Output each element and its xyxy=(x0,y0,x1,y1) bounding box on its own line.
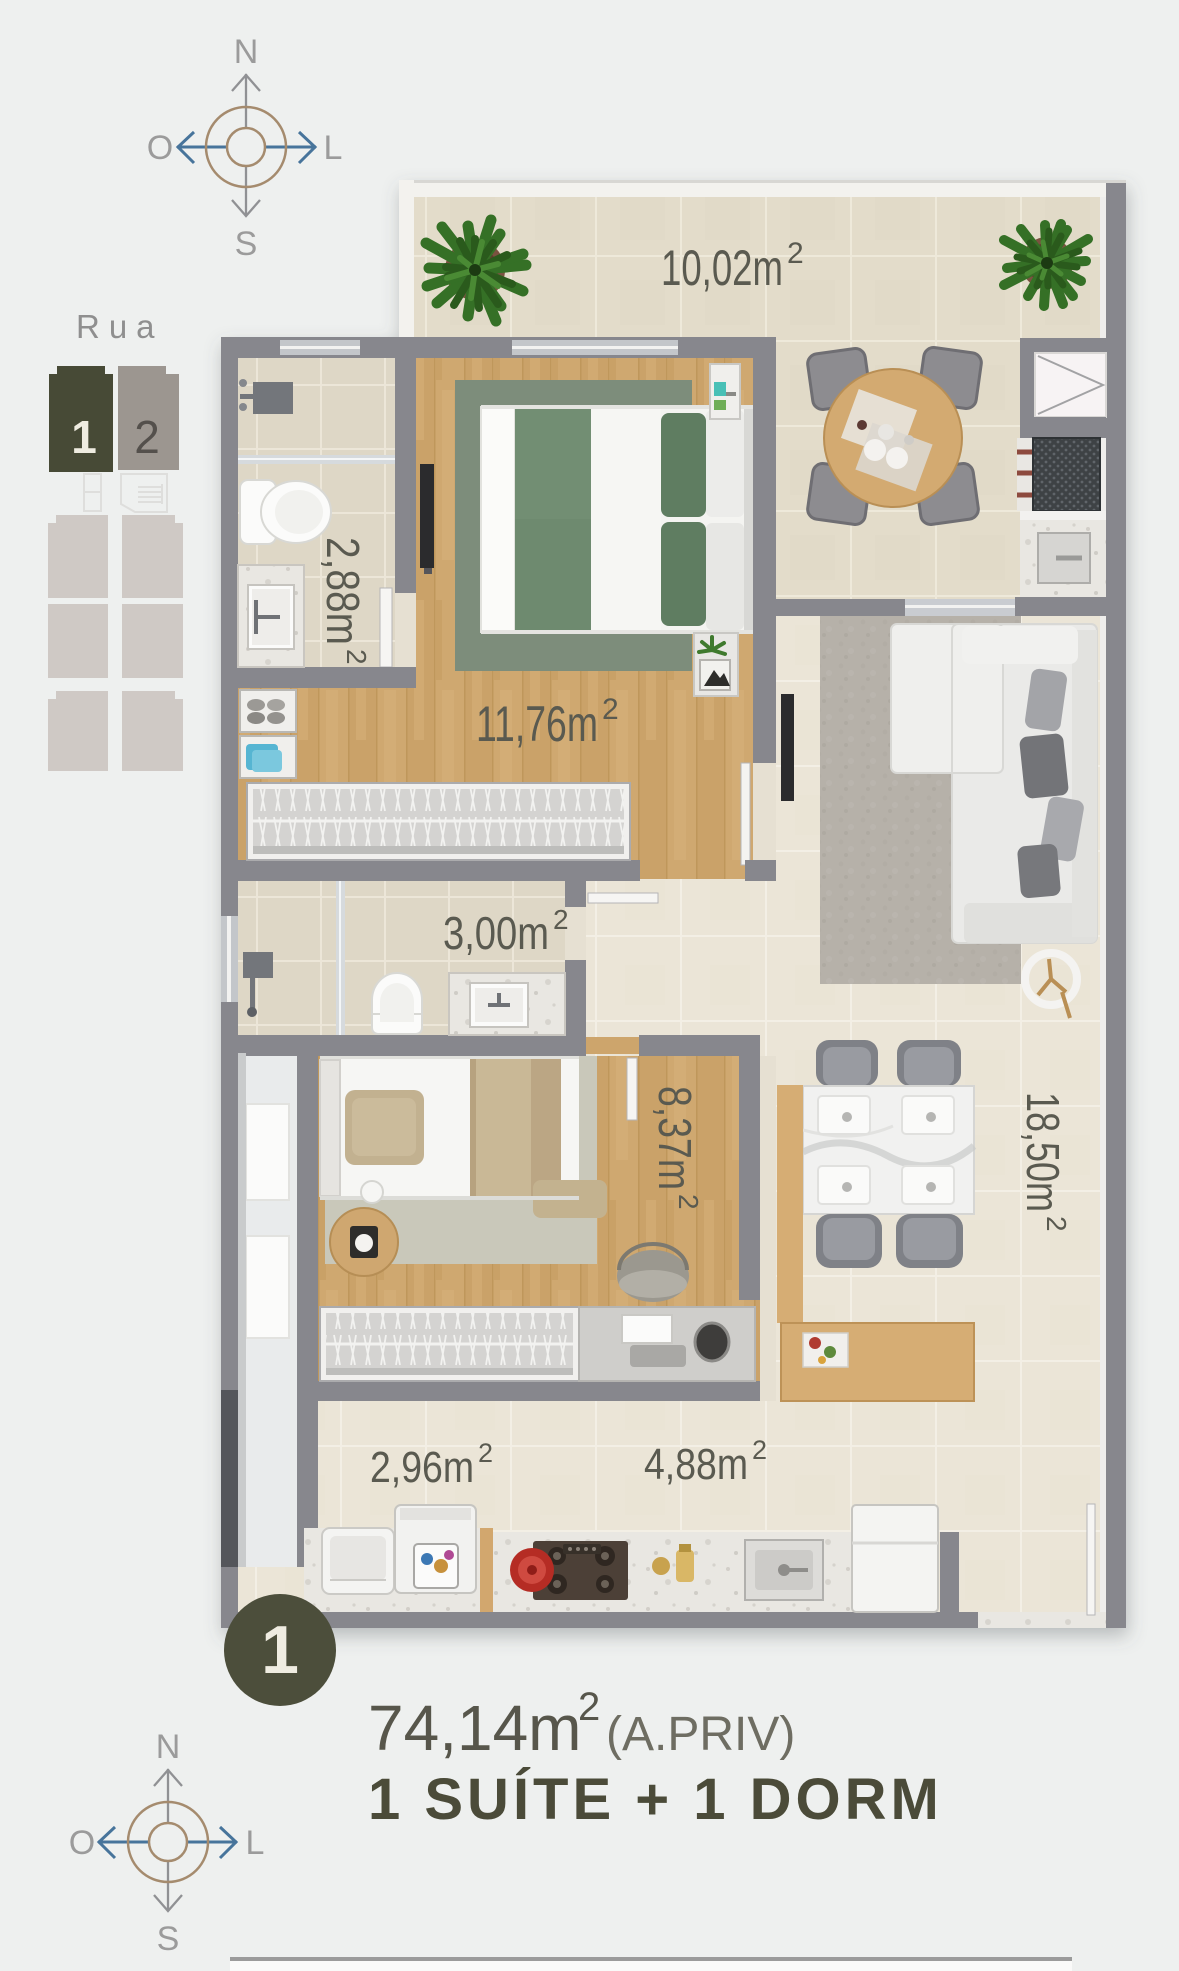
svg-text:18,50m: 18,50m xyxy=(1017,1092,1069,1212)
svg-text:10,02m: 10,02m xyxy=(661,240,783,296)
svg-text:74,14m: 74,14m xyxy=(368,1692,581,1764)
svg-text:L: L xyxy=(246,1824,265,1862)
svg-text:2: 2 xyxy=(341,649,372,665)
svg-text:2: 2 xyxy=(752,1435,767,1465)
svg-text:4,88m: 4,88m xyxy=(644,1440,748,1489)
svg-text:L: L xyxy=(324,129,343,167)
svg-text:2: 2 xyxy=(787,237,804,270)
svg-text:2,88m: 2,88m xyxy=(317,537,369,645)
svg-text:2: 2 xyxy=(673,1194,704,1210)
svg-text:2,96m: 2,96m xyxy=(370,1443,474,1492)
svg-text:1: 1 xyxy=(261,1612,299,1688)
svg-text:Rua: Rua xyxy=(76,308,164,345)
svg-text:8,37m: 8,37m xyxy=(649,1086,701,1190)
svg-text:2: 2 xyxy=(553,904,569,935)
svg-text:N: N xyxy=(156,1728,181,1766)
svg-text:1: 1 xyxy=(71,411,97,463)
svg-text:2: 2 xyxy=(602,693,619,726)
svg-text:2: 2 xyxy=(478,1438,493,1468)
svg-text:2: 2 xyxy=(578,1685,600,1729)
svg-text:N: N xyxy=(234,33,259,71)
svg-text:O: O xyxy=(147,129,173,167)
svg-text:(A.PRIV): (A.PRIV) xyxy=(606,1708,795,1761)
svg-text:2: 2 xyxy=(134,411,160,463)
svg-text:11,76m: 11,76m xyxy=(476,696,598,752)
svg-text:O: O xyxy=(69,1824,95,1862)
svg-text:2: 2 xyxy=(1041,1216,1072,1232)
svg-text:3,00m: 3,00m xyxy=(443,907,549,959)
svg-text:S: S xyxy=(235,225,258,263)
svg-text:1 SUÍTE + 1 DORM: 1 SUÍTE + 1 DORM xyxy=(368,1767,943,1832)
svg-text:S: S xyxy=(157,1920,180,1958)
